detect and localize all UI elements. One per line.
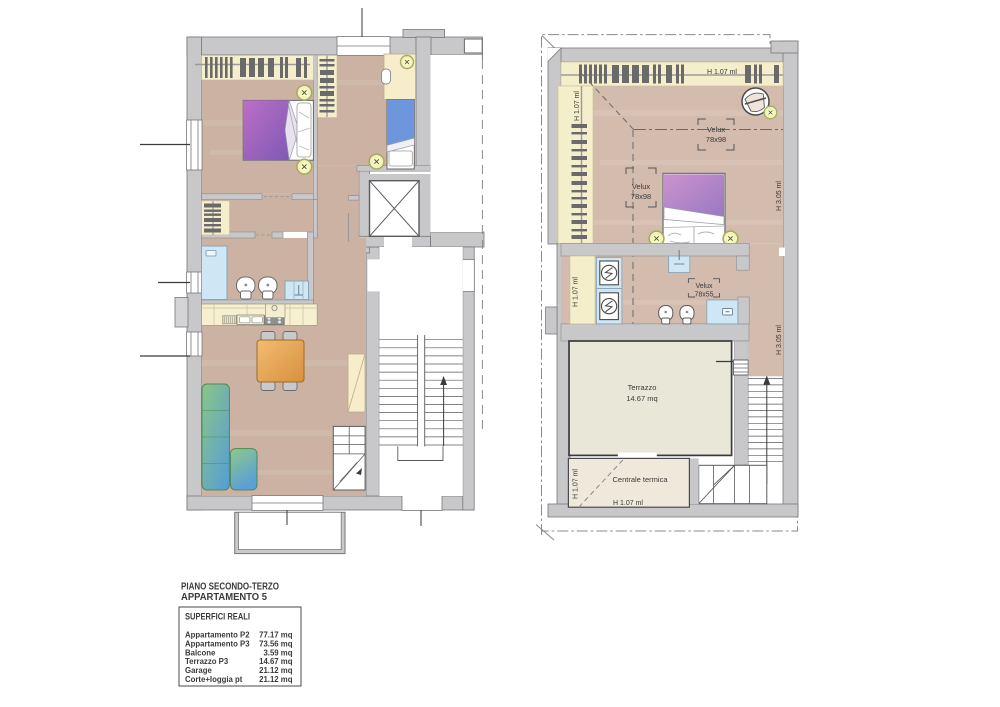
svg-text:H 1.07 ml: H 1.07 ml (573, 469, 580, 499)
svg-text:APPARTAMENTO 5: APPARTAMENTO 5 (181, 591, 267, 603)
svg-text:21.12 mq: 21.12 mq (259, 666, 293, 675)
svg-text:78x98: 78x98 (706, 135, 726, 144)
svg-text:H 1.07 ml: H 1.07 ml (707, 69, 737, 76)
svg-text:78x55: 78x55 (694, 292, 713, 299)
svg-text:H 3.05 ml: H 3.05 ml (776, 325, 783, 355)
svg-text:H 3.05 ml: H 3.05 ml (776, 181, 783, 211)
svg-text:SUPERFICI REALI: SUPERFICI REALI (185, 612, 250, 622)
svg-text:Corte+loggia pt: Corte+loggia pt (185, 675, 243, 684)
svg-text:Centrale termica: Centrale termica (612, 475, 668, 484)
svg-text:H 1.07 ml: H 1.07 ml (573, 277, 580, 307)
svg-text:73.56 mq: 73.56 mq (259, 640, 293, 649)
svg-text:Velux: Velux (632, 182, 651, 191)
svg-text:Garage: Garage (185, 666, 213, 675)
svg-text:Terrazzo P3: Terrazzo P3 (185, 657, 229, 666)
svg-text:Velux: Velux (695, 283, 713, 290)
svg-text:H 1.07 ml: H 1.07 ml (574, 91, 581, 121)
svg-text:77.17 mq: 77.17 mq (259, 631, 293, 640)
svg-text:Velux: Velux (707, 125, 726, 134)
svg-text:21.12 mq: 21.12 mq (259, 675, 293, 684)
svg-text:Appartamento P3: Appartamento P3 (185, 640, 250, 649)
svg-text:Terrazzo: Terrazzo (628, 383, 657, 392)
svg-text:H 1.07 ml: H 1.07 ml (613, 500, 643, 507)
svg-text:14.67 mq: 14.67 mq (626, 394, 657, 403)
svg-text:78x98: 78x98 (631, 192, 651, 201)
svg-text:Appartamento P2: Appartamento P2 (185, 631, 250, 640)
svg-text:14.67 mq: 14.67 mq (259, 657, 293, 666)
